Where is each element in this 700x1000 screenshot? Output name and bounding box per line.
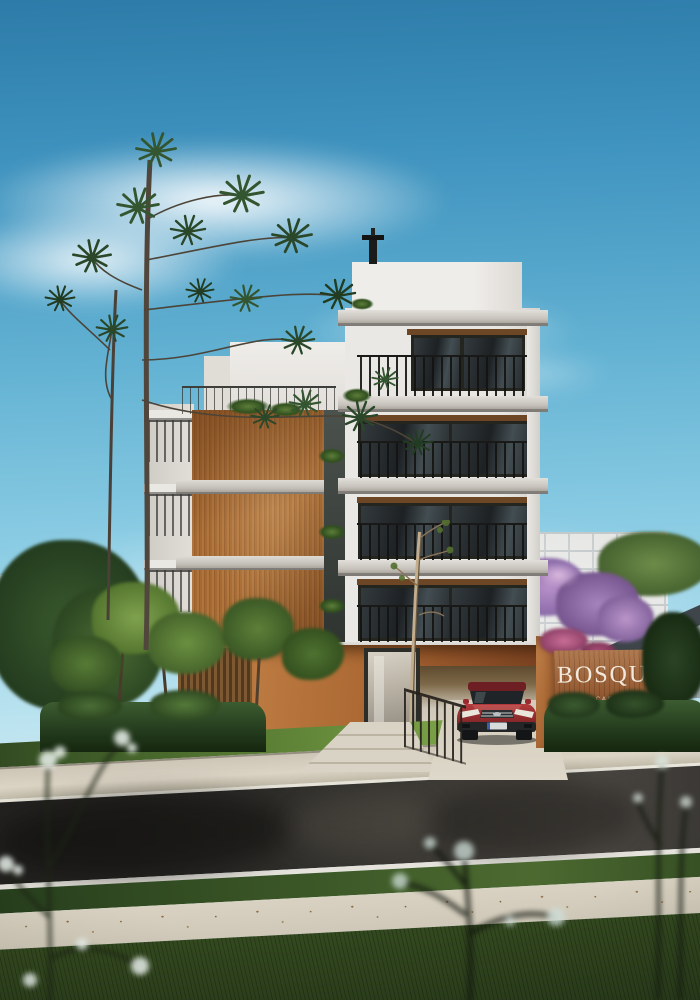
- exterior-render-scene: BOSQUE HYPE CASA NATIVA: [0, 0, 700, 1000]
- foreground-plant-silhouette: [360, 825, 590, 1000]
- pillar: [527, 412, 540, 478]
- pillar: [527, 326, 540, 396]
- pillar: [527, 494, 540, 560]
- pillar: [527, 576, 540, 642]
- foreground-stems-right: [628, 726, 700, 1000]
- foreground-wildflowers-left: [0, 718, 185, 1000]
